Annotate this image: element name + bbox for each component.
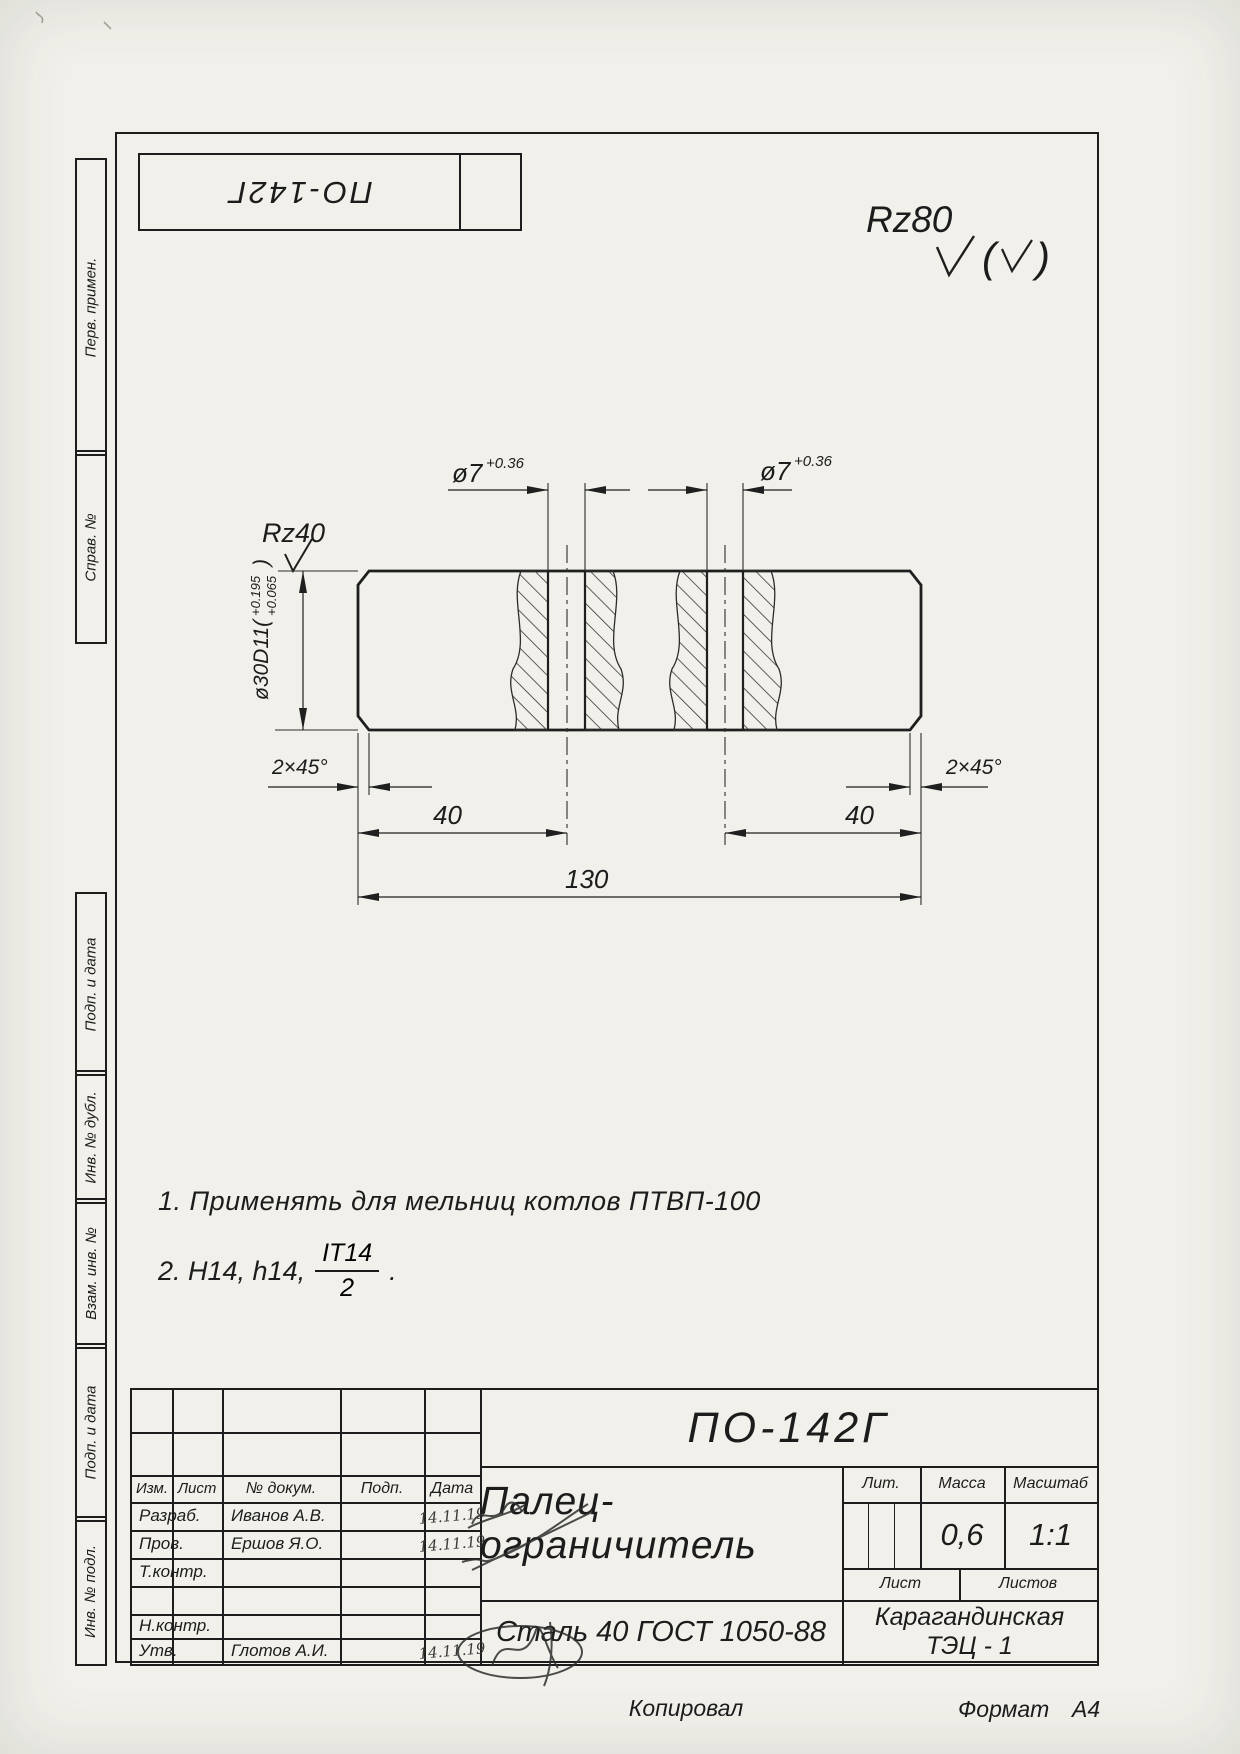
top-designation-box: ПО-142Г: [138, 153, 522, 231]
titleblock-designation: ПО-142Г: [480, 1390, 1097, 1466]
row-role-nkontr: Н.контр.: [132, 1614, 222, 1638]
grid-line: [132, 1586, 480, 1588]
side-cell-podp-data-2: Подп. и дата: [75, 1343, 107, 1522]
grid-line: [868, 1502, 869, 1568]
row-date-prov: 14.11.19: [423, 1528, 481, 1561]
note-line-2-text: 2. Н14, h14,: [158, 1256, 305, 1287]
grid-line: [132, 1432, 480, 1434]
row-name-razrab: Иванов А.В.: [224, 1502, 340, 1530]
header-list2: Лист: [842, 1568, 959, 1600]
organization-line-2: ТЭЦ - 1: [926, 1632, 1013, 1661]
fraction-denominator: 2: [340, 1272, 354, 1303]
scale-value: 1:1: [1004, 1502, 1097, 1568]
top-designation-cell: ПО-142Г: [140, 155, 459, 229]
side-label: Перв. примен.: [83, 257, 100, 357]
row-role-utv: Утв.: [132, 1638, 222, 1664]
note-line-2: 2. Н14, h14, IT14 2 .: [158, 1230, 397, 1312]
copied-label: Копировал: [600, 1694, 772, 1722]
row-name-utv: Глотов А.И.: [224, 1638, 340, 1664]
header-massa: Масса: [920, 1466, 1004, 1502]
organization-cell: Карагандинская ТЭЦ - 1: [842, 1600, 1097, 1664]
note-line-1: 1. Применять для мельниц котлов ПТВП-100: [158, 1186, 761, 1217]
row-role-tkontr: Т.контр.: [132, 1558, 222, 1586]
header-masshtab: Масштаб: [1004, 1466, 1097, 1502]
col-header-doc: № докум.: [222, 1475, 340, 1502]
header-lit: Лит.: [842, 1466, 920, 1502]
col-header-data: Дата: [424, 1475, 480, 1502]
col-header-izm: Изм.: [132, 1475, 172, 1502]
side-cell-sprav-no: Справ. №: [75, 450, 107, 644]
titleblock-part-name: Палец-ограничитель: [480, 1480, 842, 1600]
mass-value: 0,6: [920, 1502, 1004, 1568]
title-block: Изм. Лист № докум. Подп. Дата Разраб. Ив…: [130, 1388, 1099, 1666]
grid-line: [894, 1502, 895, 1568]
side-label: Справ. №: [83, 513, 100, 581]
side-cell-perv-primen: Перв. примен.: [75, 158, 107, 456]
note-line-2-period: .: [389, 1256, 397, 1287]
side-cell-vzam-inv: Взам. инв. №: [75, 1198, 107, 1349]
row-name-prov: Ершов Я.О.: [224, 1530, 340, 1558]
side-label: Взам. инв. №: [83, 1227, 100, 1320]
format-label: Формат: [958, 1696, 1049, 1723]
format-value: А4: [1072, 1696, 1100, 1723]
row-role-razrab: Разраб.: [132, 1502, 222, 1530]
col-header-podp: Подп.: [340, 1475, 424, 1502]
organization-line-1: Карагандинская: [875, 1603, 1064, 1632]
side-label: Подп. и дата: [83, 937, 100, 1031]
grid-line: [459, 155, 461, 229]
row-role-prov: Пров.: [132, 1530, 222, 1558]
tolerance-fraction: IT14 2: [315, 1239, 379, 1303]
side-cell-podp-data-1: Подп. и дата: [75, 892, 107, 1076]
row-date-utv: 14.11.19: [423, 1636, 481, 1667]
titleblock-material: Сталь 40 ГОСТ 1050-88: [480, 1600, 842, 1664]
col-header-list: Лист: [172, 1475, 222, 1502]
side-cell-inv-podl: Инв. № подл.: [75, 1516, 107, 1666]
side-label: Инв. № дубл.: [83, 1091, 100, 1183]
header-listov: Листов: [959, 1568, 1097, 1600]
side-label: Инв. № подл.: [83, 1544, 100, 1637]
top-designation-text: ПО-142Г: [226, 174, 372, 210]
fraction-numerator: IT14: [315, 1239, 379, 1272]
side-label: Подп. и дата: [83, 1386, 100, 1480]
side-cell-inv-dubl: Инв. № дубл.: [75, 1070, 107, 1204]
